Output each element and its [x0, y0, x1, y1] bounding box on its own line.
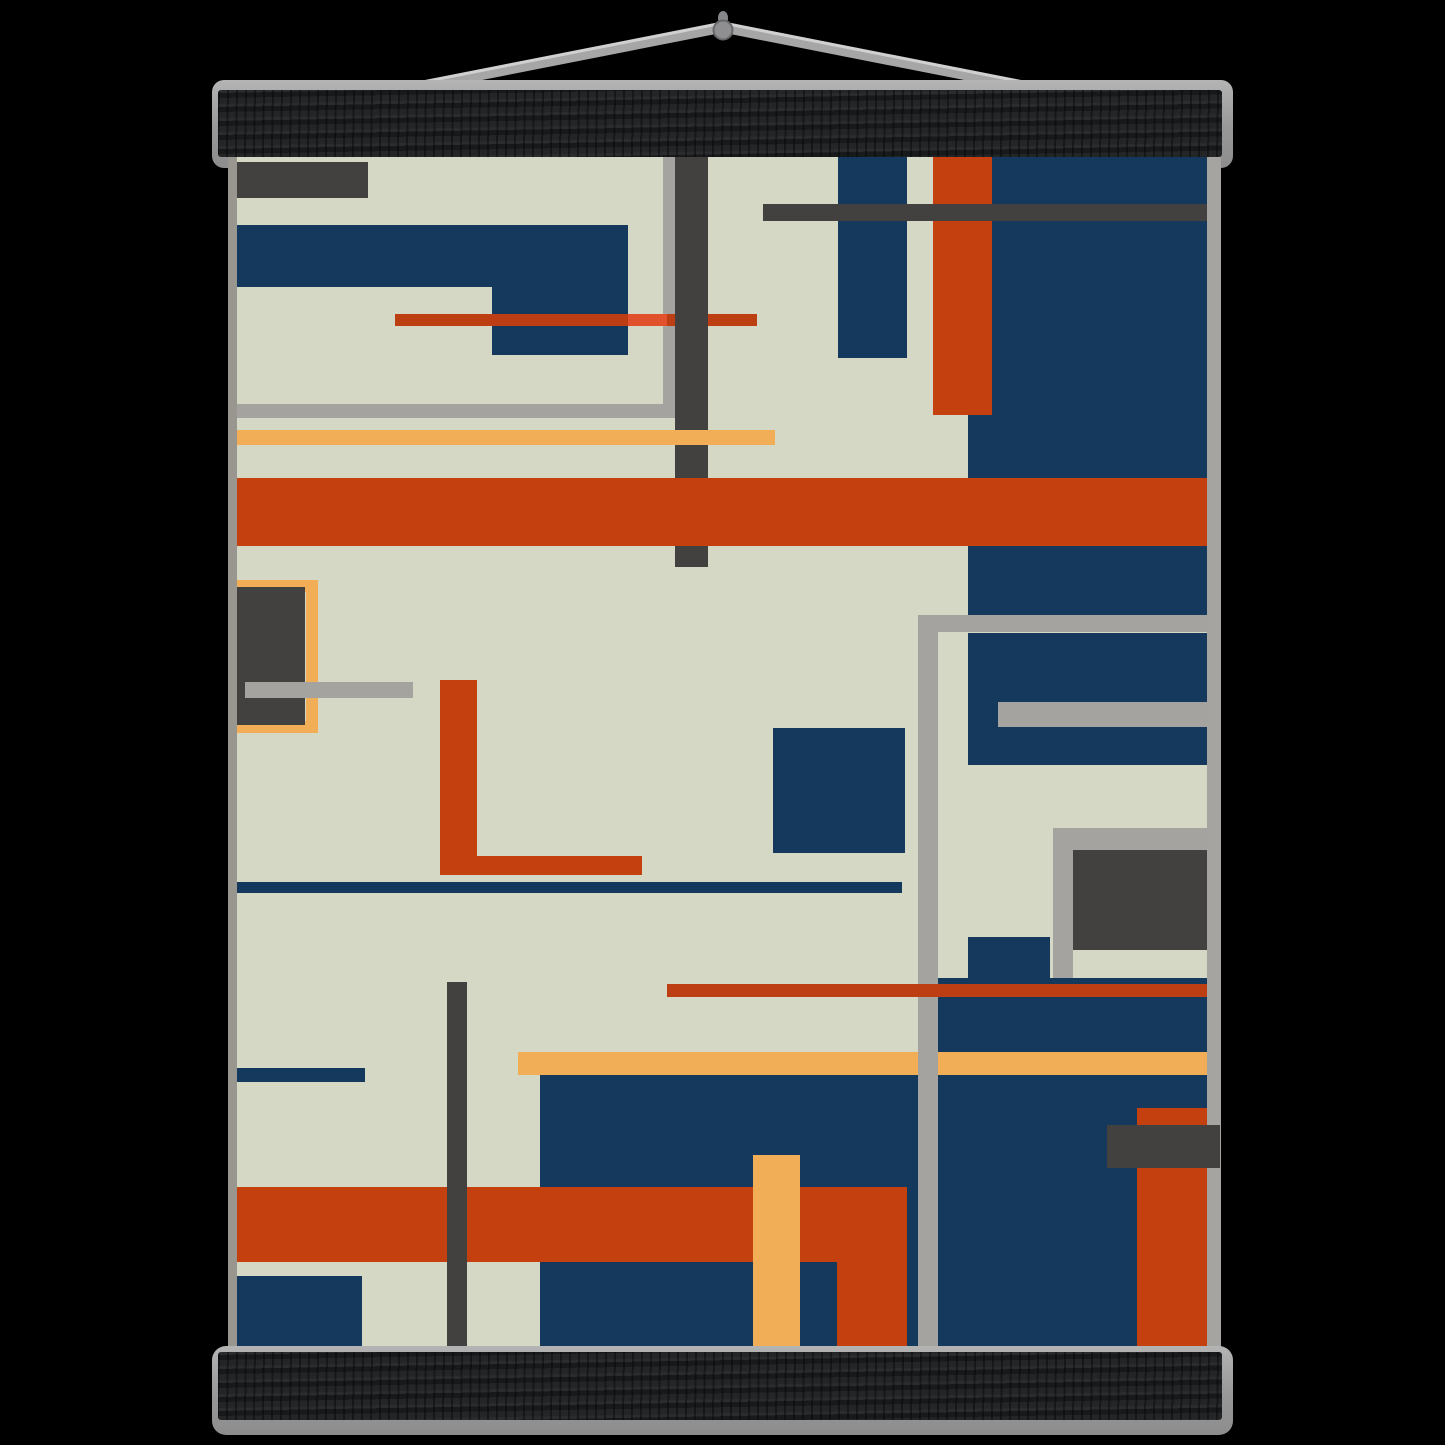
- poster-artwork: [228, 157, 1221, 1352]
- orange-band-middle: [237, 478, 1207, 546]
- navy-l-shape-top: [237, 225, 628, 287]
- charcoal-vertical-bar-lower: [447, 982, 467, 1352]
- hanging-pin-icon: [714, 21, 733, 40]
- rust-l-vertical: [440, 680, 477, 875]
- charcoal-rect-bottom-right: [1107, 1125, 1220, 1168]
- charcoal-block-right: [1073, 847, 1207, 950]
- silver-bar-inside-navy: [998, 702, 1207, 727]
- navy-small-block-right: [968, 937, 1050, 978]
- navy-short-bar-left: [237, 1068, 365, 1082]
- rust-l-horizontal: [440, 856, 642, 875]
- silver-outline2-vertical: [1053, 828, 1073, 978]
- rust-thin-line-lower: [667, 984, 1207, 997]
- orange-band-bottom: [237, 1187, 907, 1262]
- poster-left-edge-strip: [228, 157, 237, 1352]
- charcoal-horizontal-bar-top: [763, 204, 1207, 221]
- rust-vertical-bar-top: [933, 157, 992, 415]
- navy-block-bottom-left: [237, 1276, 362, 1352]
- navy-block-mid-right: [968, 633, 1207, 765]
- navy-square-center: [773, 728, 905, 853]
- silver-outline-left-bottom: [237, 404, 678, 418]
- silver-outline2-horizontal: [1053, 828, 1207, 850]
- navy-thin-line-middle: [237, 882, 902, 893]
- wire-left-leg: [423, 27, 723, 86]
- silver-outline1-horizontal: [918, 615, 1207, 632]
- charcoal-rect-top-left: [237, 162, 368, 198]
- rust-extension-bottom: [837, 1262, 907, 1352]
- peach-band-lower: [518, 1052, 1207, 1075]
- product-mockup-canvas: { "product": { "description": "abstract-…: [0, 0, 1445, 1445]
- peach-vertical-bar-bottom: [753, 1155, 800, 1352]
- wire-right-highlight: [723, 23, 1023, 82]
- red-thin-line-bright-segment: [628, 314, 667, 326]
- bottom-hanger-wood-bar: [218, 1352, 1222, 1420]
- charcoal-rect-middle-left: [237, 587, 305, 725]
- wire-right-leg: [723, 27, 1023, 86]
- peach-band-upper: [237, 430, 775, 445]
- silver-bar-middle-left: [245, 682, 413, 698]
- navy-block-top-right: [968, 157, 1207, 615]
- navy-vertical-bar-top: [838, 157, 907, 358]
- wire-left-highlight: [423, 23, 723, 82]
- poster-right-edge-strip: [1207, 157, 1221, 1352]
- top-hanger-wood-bar: [218, 90, 1222, 157]
